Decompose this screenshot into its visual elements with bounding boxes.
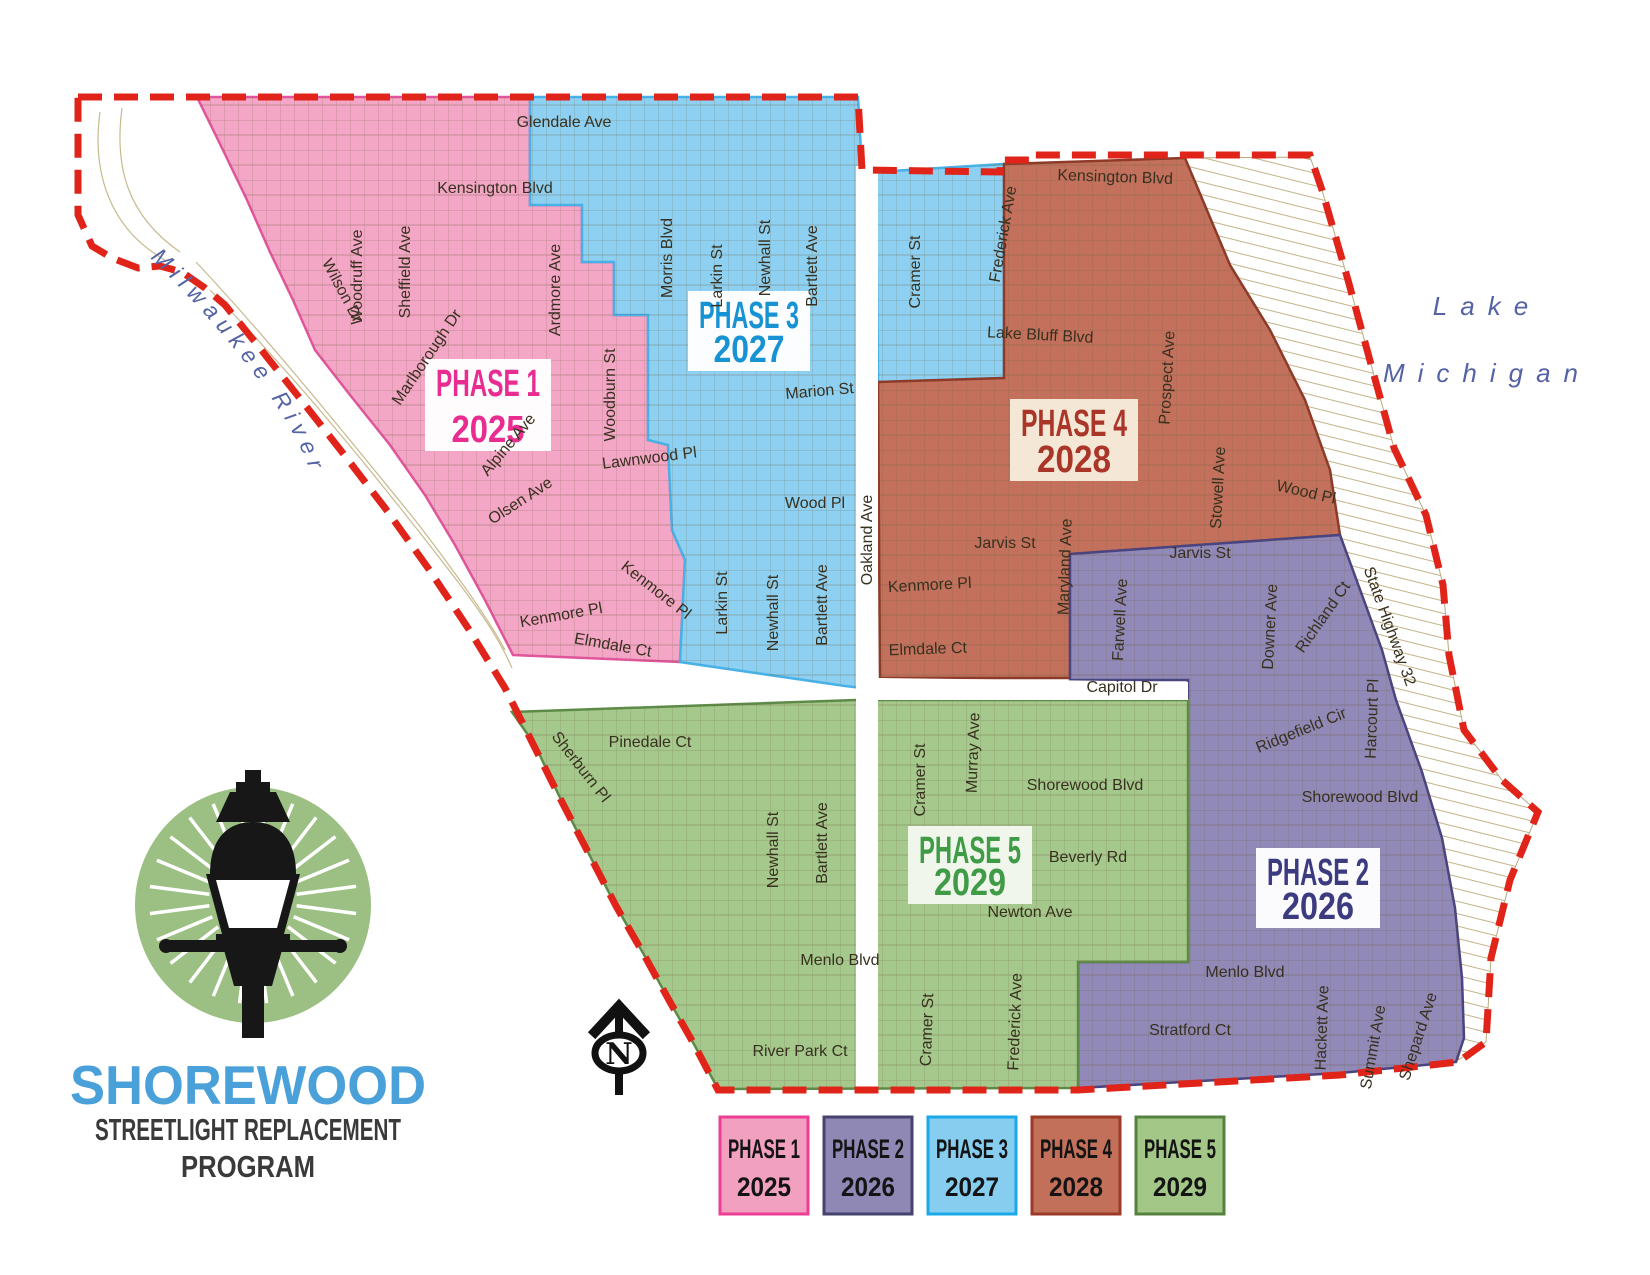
phase-4-label-year: 2028 bbox=[1037, 439, 1111, 481]
street-label: Oakland Ave bbox=[859, 495, 876, 586]
street-label: Newhall St bbox=[757, 219, 774, 296]
legend-year: 2029 bbox=[1153, 1172, 1207, 1202]
street-label: Newhall St bbox=[765, 811, 782, 888]
street-label: Larkin St bbox=[714, 571, 731, 635]
street-label: Menlo Blvd bbox=[1205, 964, 1284, 981]
street-label: Newhall St bbox=[765, 574, 782, 651]
street-label: Hackett Ave bbox=[1313, 985, 1333, 1071]
legend-year: 2026 bbox=[841, 1172, 895, 1202]
street-label: Harcourt Pl bbox=[1363, 679, 1383, 760]
street-label: Sheffield Ave bbox=[397, 225, 414, 318]
phase-3-label-year: 2027 bbox=[714, 329, 785, 371]
legend-item-4: PHASE 42028 bbox=[1032, 1117, 1120, 1214]
street-label: Bartlett Ave bbox=[814, 802, 831, 884]
legend-label: PHASE 4 bbox=[1040, 1134, 1112, 1164]
street-label: Morris Blvd bbox=[659, 218, 676, 298]
legend-label: PHASE 2 bbox=[832, 1134, 904, 1164]
street-label: Larkin St bbox=[709, 244, 726, 308]
phase-1-label-text: PHASE 1 bbox=[436, 363, 540, 405]
street-label: Pinedale Ct bbox=[609, 734, 692, 751]
phase-2-label: PHASE 22026 bbox=[1256, 848, 1380, 928]
street-label: Kensington Blvd bbox=[437, 180, 553, 197]
shorewood-map: PHASE 12025PHASE 22026PHASE 32027PHASE 4… bbox=[0, 0, 1650, 1275]
street-label: Cramer St bbox=[907, 235, 924, 308]
legend-item-2: PHASE 22026 bbox=[824, 1117, 912, 1214]
street-label: Shorewood Blvd bbox=[1027, 777, 1144, 794]
legend-label: PHASE 1 bbox=[728, 1134, 800, 1164]
street-label: Glendale Ave bbox=[517, 114, 612, 131]
street-label: Cramer St bbox=[912, 743, 929, 816]
phase-1-label: PHASE 12025 bbox=[425, 359, 551, 451]
phase-4-label: PHASE 42028 bbox=[1010, 399, 1138, 481]
phase-5-label: PHASE 52029 bbox=[908, 826, 1032, 904]
street-label: Jarvis St bbox=[974, 535, 1036, 552]
phase-2-label-year: 2026 bbox=[1282, 886, 1354, 928]
legend-year: 2025 bbox=[737, 1172, 791, 1202]
street-label: Stratford Ct bbox=[1149, 1022, 1231, 1039]
street-label: Murray Ave bbox=[964, 712, 984, 793]
street-label: Wood Pl bbox=[785, 495, 845, 512]
phase-3-label: PHASE 32027 bbox=[688, 291, 810, 371]
street-label: Ardmore Ave bbox=[547, 244, 564, 336]
legend-year: 2028 bbox=[1049, 1172, 1103, 1202]
street-label: Jarvis St bbox=[1169, 545, 1231, 562]
north-letter: N bbox=[605, 1037, 632, 1072]
legend: PHASE 12025PHASE 22026PHASE 32027PHASE 4… bbox=[720, 1117, 1224, 1214]
program-subtitle-2: PROGRAM bbox=[181, 1149, 315, 1184]
lake-label-line1: Lake bbox=[1433, 291, 1541, 321]
street-label: Woodburn St bbox=[602, 348, 619, 442]
lake-label-line2: Michigan bbox=[1383, 358, 1591, 388]
street-label: Elmdale Ct bbox=[888, 640, 967, 660]
street-label: Menlo Blvd bbox=[800, 952, 879, 969]
legend-label: PHASE 3 bbox=[936, 1134, 1008, 1164]
street-label: Capitol Dr bbox=[1086, 679, 1158, 696]
street-label: Beverly Rd bbox=[1049, 849, 1127, 866]
legend-year: 2027 bbox=[945, 1172, 999, 1202]
street-label: Bartlett Ave bbox=[804, 225, 821, 307]
legend-label: PHASE 5 bbox=[1144, 1134, 1216, 1164]
program-title: SHOREWOOD bbox=[70, 1054, 426, 1116]
street-label: River Park Ct bbox=[752, 1043, 848, 1060]
poster-page: PHASE 12025PHASE 22026PHASE 32027PHASE 4… bbox=[0, 0, 1650, 1275]
street-label: Frederick Ave bbox=[1005, 973, 1025, 1071]
street-label: Cramer St bbox=[918, 993, 938, 1067]
street-label: Bartlett Ave bbox=[814, 564, 831, 646]
legend-item-3: PHASE 32027 bbox=[928, 1117, 1016, 1214]
phase-5-label-year: 2029 bbox=[934, 862, 1006, 904]
street-label: Shorewood Blvd bbox=[1302, 789, 1419, 806]
street-label: Maryland Ave bbox=[1055, 518, 1075, 615]
street-label: Newton Ave bbox=[987, 904, 1072, 921]
legend-item-5: PHASE 52029 bbox=[1136, 1117, 1224, 1214]
program-subtitle-1: STREETLIGHT REPLACEMENT bbox=[95, 1112, 401, 1147]
legend-item-1: PHASE 12025 bbox=[720, 1117, 808, 1214]
